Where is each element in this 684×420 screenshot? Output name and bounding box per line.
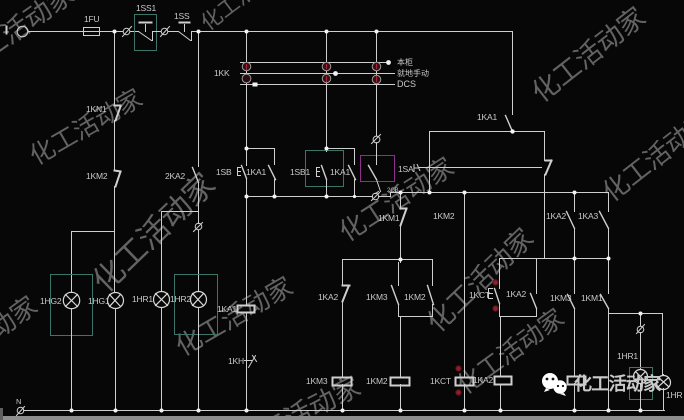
svg-text:1HR2: 1HR2 bbox=[170, 294, 191, 304]
svg-text:1KM2: 1KM2 bbox=[366, 376, 388, 386]
svg-text:化工活动家: 化工活动家 bbox=[574, 373, 662, 394]
svg-text:1KCT: 1KCT bbox=[430, 376, 451, 386]
svg-text:就地手动: 就地手动 bbox=[397, 68, 429, 78]
svg-text:2CB: 2CB bbox=[387, 188, 399, 194]
svg-text:1KM1: 1KM1 bbox=[378, 213, 400, 223]
svg-text:1KA1: 1KA1 bbox=[246, 167, 266, 177]
svg-text:1SS: 1SS bbox=[174, 11, 190, 21]
svg-text:1KA2: 1KA2 bbox=[473, 375, 493, 385]
svg-text:1KM2: 1KM2 bbox=[404, 292, 426, 302]
svg-text:1KM3: 1KM3 bbox=[306, 376, 328, 386]
svg-text:1KM2: 1KM2 bbox=[433, 211, 455, 221]
svg-text:1FU: 1FU bbox=[84, 14, 100, 24]
svg-text:N: N bbox=[16, 397, 21, 406]
svg-text:1KH: 1KH bbox=[228, 356, 244, 366]
svg-text:1KN1: 1KN1 bbox=[86, 104, 107, 114]
svg-text:1HR1: 1HR1 bbox=[132, 294, 153, 304]
svg-text:1KM1: 1KM1 bbox=[581, 293, 603, 303]
svg-text:1HR: 1HR bbox=[666, 390, 682, 400]
svg-text:1SB1: 1SB1 bbox=[290, 167, 310, 177]
svg-text:1KK: 1KK bbox=[214, 68, 230, 78]
svg-text:1SB: 1SB bbox=[216, 167, 232, 177]
svg-text:1HG1: 1HG1 bbox=[88, 296, 110, 306]
svg-text:1KA2: 1KA2 bbox=[506, 289, 526, 299]
svg-text:1HR1: 1HR1 bbox=[617, 351, 638, 361]
svg-text:1KA2: 1KA2 bbox=[546, 211, 566, 221]
svg-text:1KCT: 1KCT bbox=[469, 290, 490, 300]
svg-text:1KM3: 1KM3 bbox=[550, 293, 572, 303]
svg-text:1KA1: 1KA1 bbox=[217, 304, 237, 314]
svg-text:1SS1: 1SS1 bbox=[136, 3, 156, 13]
svg-text:DCS: DCS bbox=[397, 79, 416, 89]
svg-text:2KA2: 2KA2 bbox=[165, 171, 185, 181]
svg-text:1KA2: 1KA2 bbox=[318, 292, 338, 302]
svg-text:1KA1: 1KA1 bbox=[477, 112, 497, 122]
svg-text:1KM3: 1KM3 bbox=[366, 292, 388, 302]
svg-text:1KM2: 1KM2 bbox=[86, 171, 108, 181]
svg-text:1SA: 1SA bbox=[398, 164, 414, 174]
svg-text:1HG2: 1HG2 bbox=[40, 296, 62, 306]
svg-text:1KA3: 1KA3 bbox=[578, 211, 598, 221]
svg-text:本柜: 本柜 bbox=[397, 57, 413, 67]
svg-text:1KA1: 1KA1 bbox=[330, 167, 350, 177]
